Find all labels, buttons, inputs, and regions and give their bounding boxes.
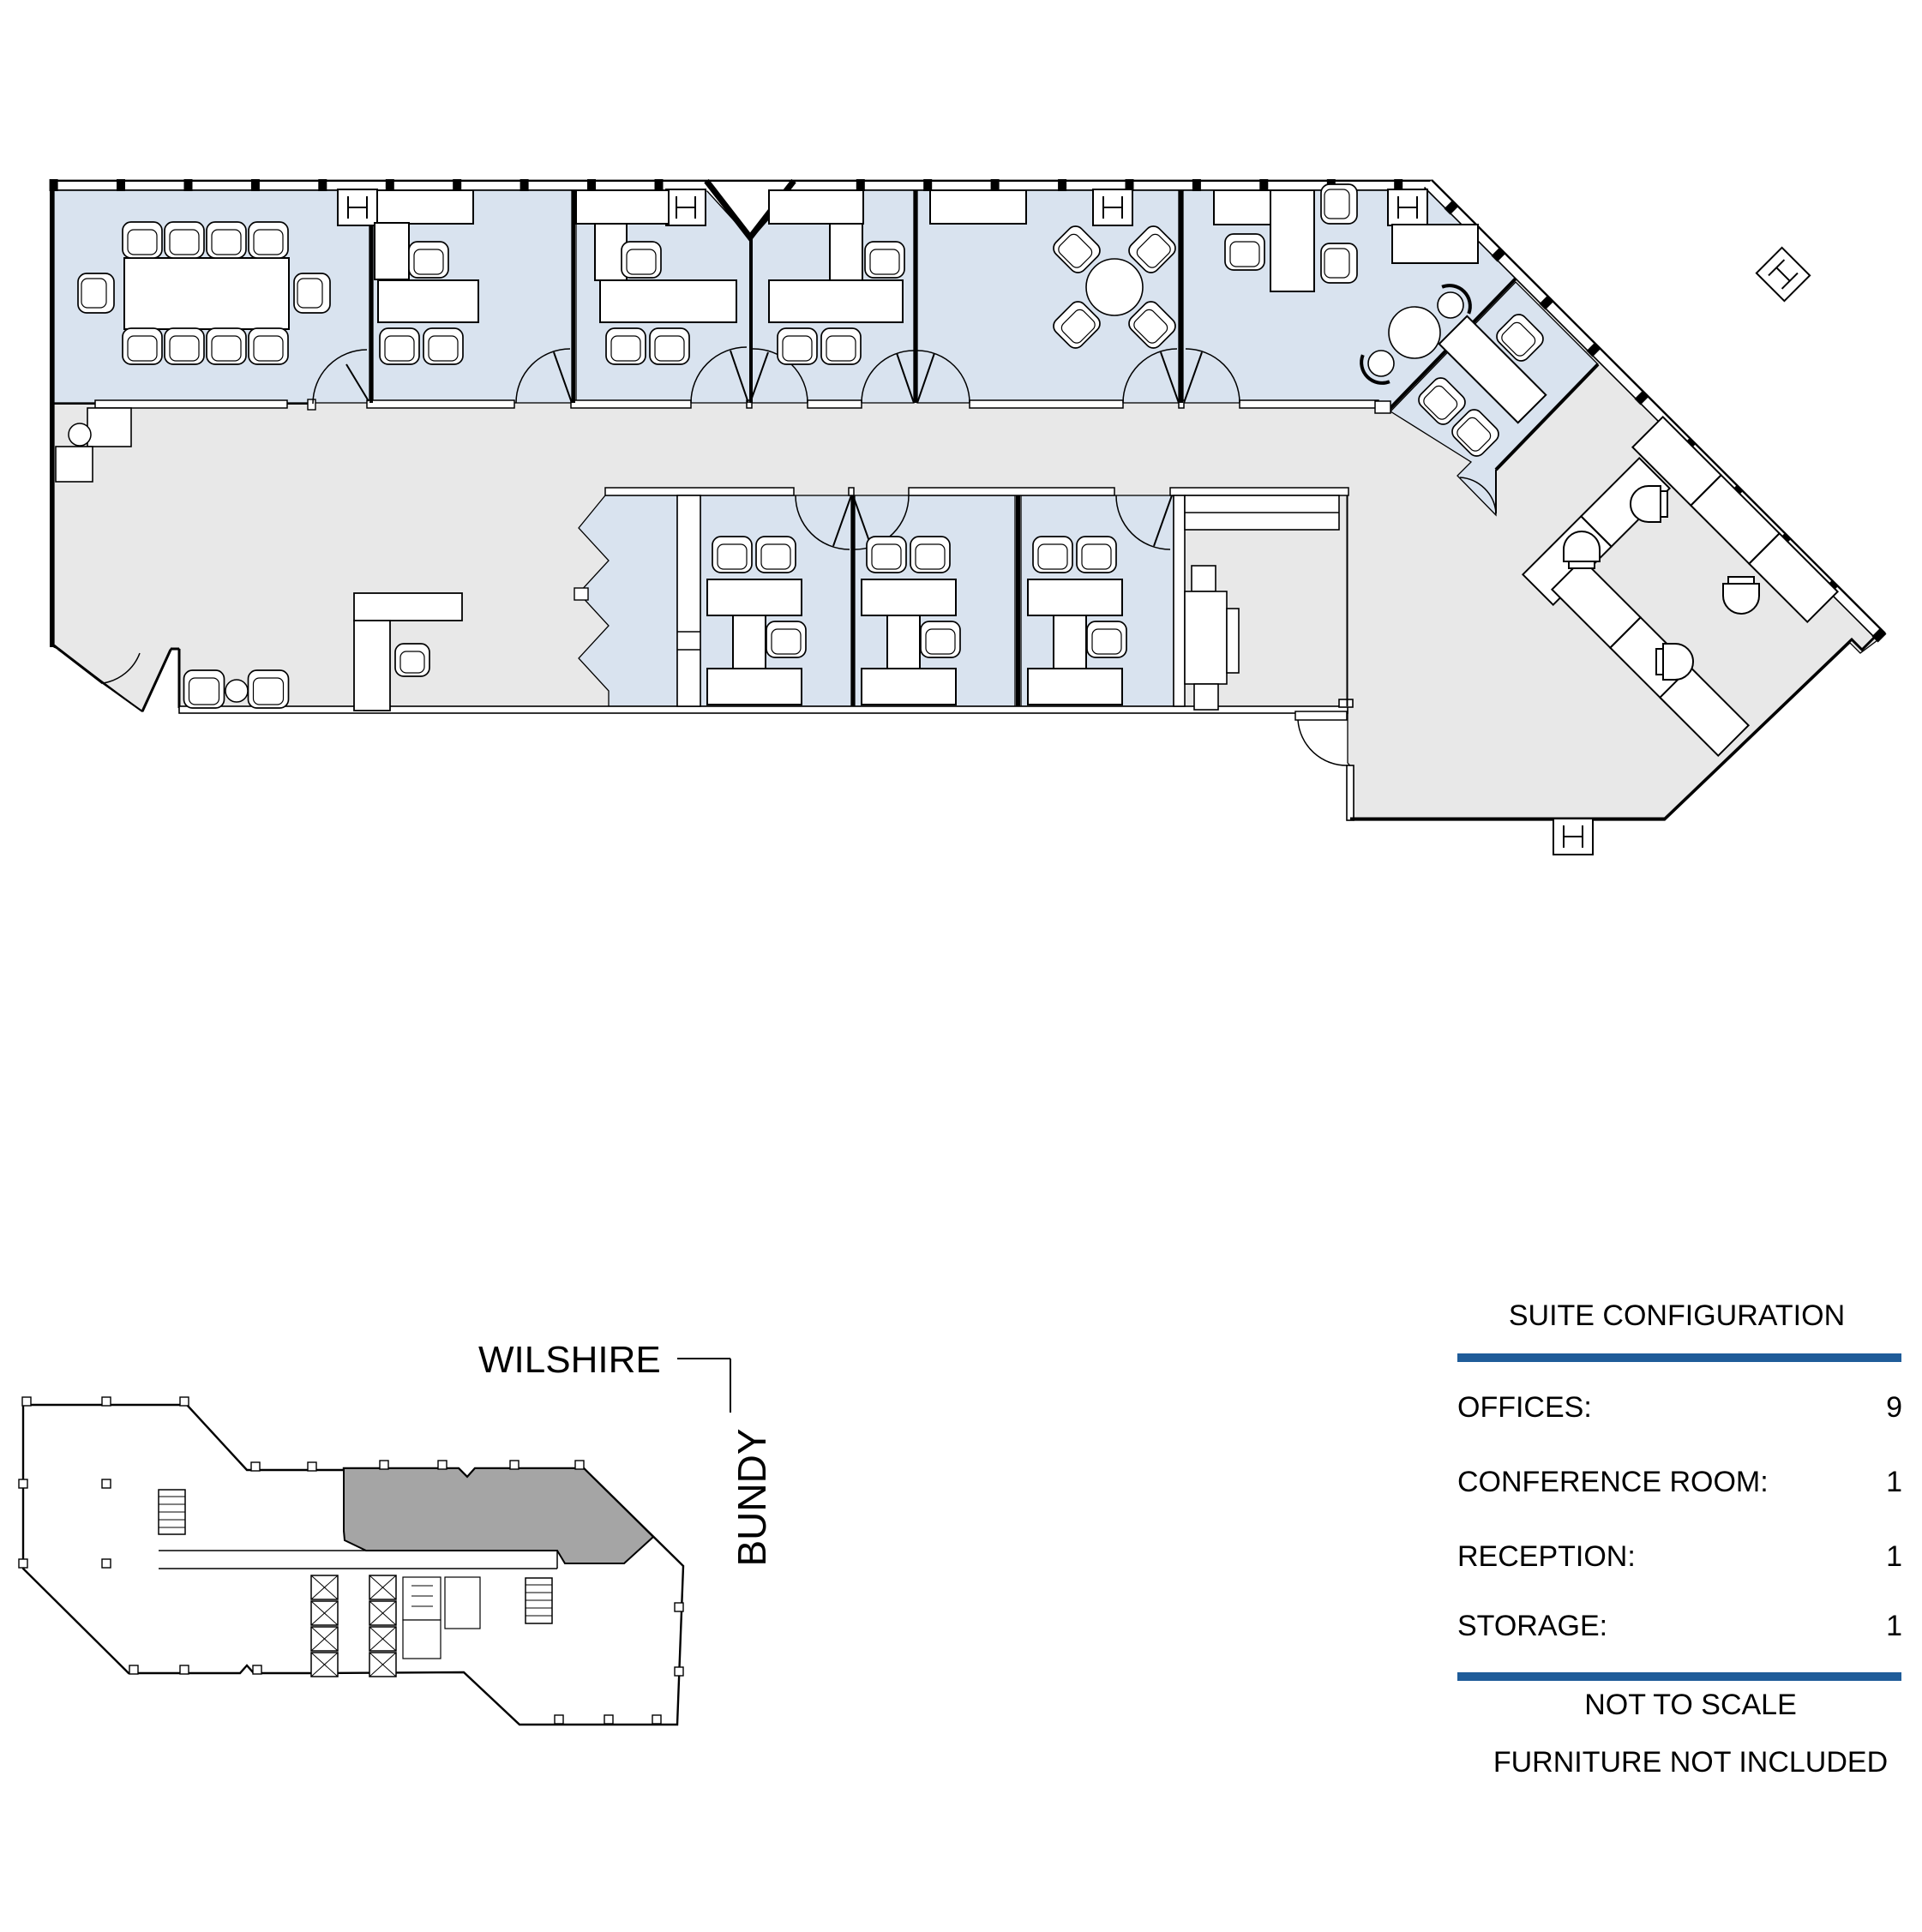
svg-text:WILSHIRE: WILSHIRE: [478, 1339, 661, 1381]
svg-text:OFFICES:: OFFICES:: [1457, 1391, 1592, 1424]
svg-text:STORAGE:: STORAGE:: [1457, 1610, 1607, 1642]
svg-text:9: 9: [1886, 1391, 1902, 1424]
svg-text:NOT TO SCALE: NOT TO SCALE: [1584, 1689, 1797, 1721]
svg-text:1: 1: [1886, 1466, 1902, 1498]
svg-text:1: 1: [1886, 1610, 1902, 1642]
svg-text:SUITE CONFIGURATION: SUITE CONFIGURATION: [1509, 1299, 1845, 1332]
svg-text:BUNDY: BUNDY: [730, 1428, 774, 1566]
svg-text:RECEPTION:: RECEPTION:: [1457, 1540, 1636, 1573]
svg-text:FURNITURE NOT INCLUDED: FURNITURE NOT INCLUDED: [1493, 1746, 1888, 1779]
svg-text:CONFERENCE ROOM:: CONFERENCE ROOM:: [1457, 1466, 1769, 1498]
svg-text:1: 1: [1886, 1540, 1902, 1573]
